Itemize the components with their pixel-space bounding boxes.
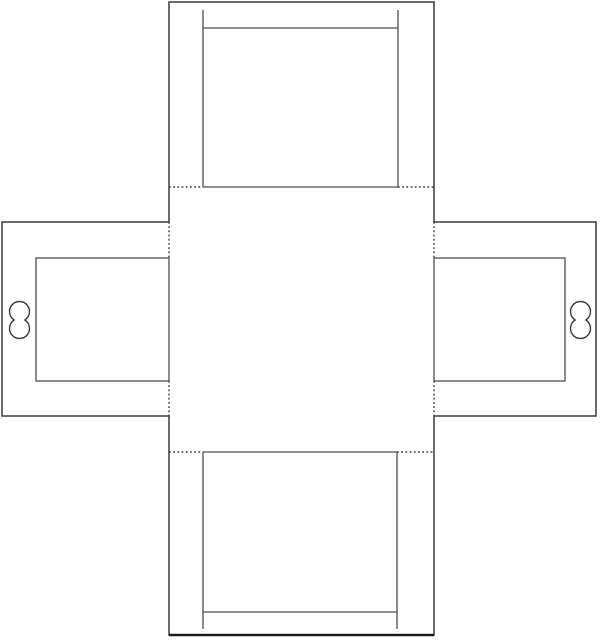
right-flap-window-frame (434, 258, 565, 381)
right-flap-hanging-hole (571, 302, 591, 339)
window-frames-group (36, 258, 565, 381)
left-flap-window-frame (36, 258, 169, 381)
fold-lines-group (169, 187, 434, 452)
cut-outline-group (2, 2, 596, 635)
hanging-holes-group (9, 302, 590, 339)
box-template-page (0, 0, 600, 641)
cross-cut-outline (2, 2, 596, 635)
box-net-diagram (0, 0, 600, 641)
lid-panel-lines-group (203, 10, 398, 629)
left-flap-hanging-hole (9, 302, 29, 339)
